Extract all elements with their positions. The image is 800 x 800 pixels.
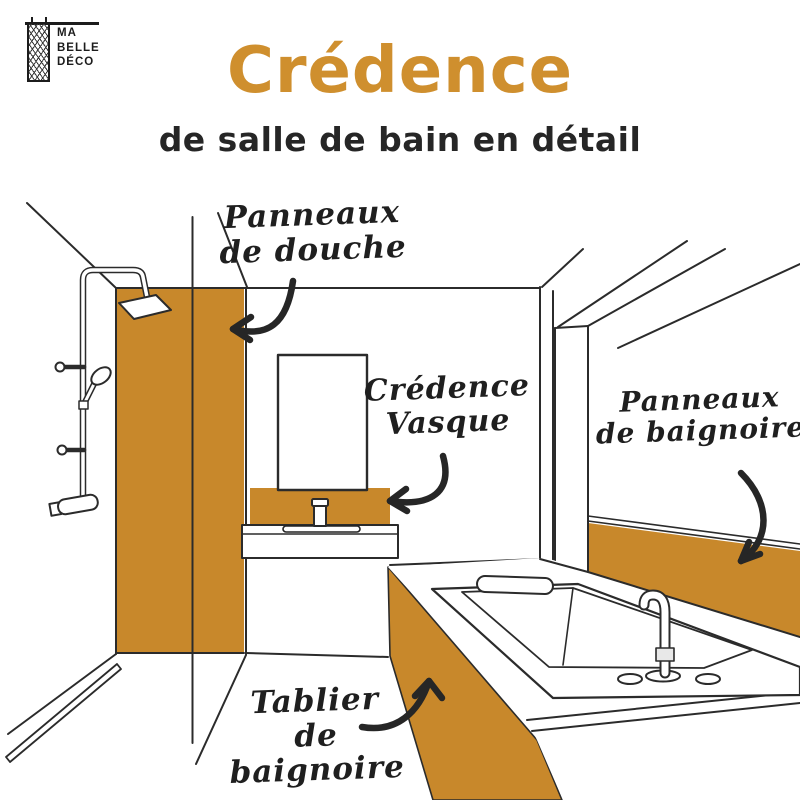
left-ceiling-edge — [27, 203, 116, 288]
valve-knob-top — [56, 363, 65, 372]
label-bathtub-apron: Tablier de baignoire — [208, 680, 424, 791]
mirror — [278, 355, 367, 490]
beam-line-3 — [618, 264, 800, 348]
left-floor-edge — [8, 654, 116, 734]
faucet-collar — [656, 648, 674, 661]
sink-faucet-body — [314, 504, 326, 526]
hand-shower-clamp — [79, 401, 88, 409]
mixer-body — [57, 494, 99, 516]
shower-mixer — [49, 494, 99, 517]
sink-faucet-head — [312, 499, 328, 506]
tub-handle-right — [696, 674, 720, 684]
label-sink-splashback: Crédence Vasque — [359, 369, 536, 442]
floor-drain — [6, 664, 121, 762]
infographic-page: MA BELLE DÉCO Crédence de salle de bain … — [0, 0, 800, 800]
label-shower-panels: Panneaux de douche — [204, 194, 421, 271]
bath-pillow — [477, 576, 554, 595]
back-floor-edge — [246, 653, 388, 657]
valve-knob-bottom — [58, 446, 67, 455]
tub-handle-left — [618, 674, 642, 684]
shower-panel-highlight — [116, 288, 244, 654]
label-bathtub-panels: Panneaux de baignoire — [593, 380, 800, 450]
right-ceiling-diagonal — [542, 249, 583, 287]
